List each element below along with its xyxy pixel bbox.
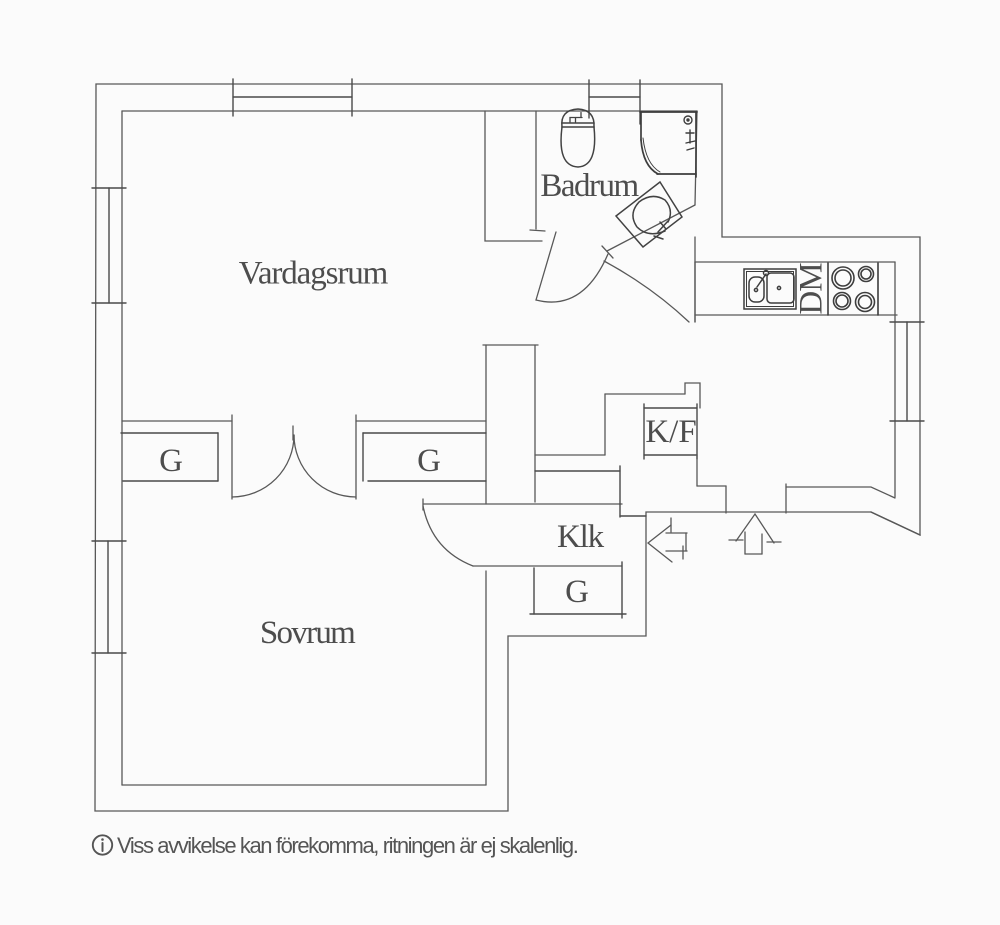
svg-text:Sovrum: Sovrum [260,615,356,651]
svg-text:G: G [159,443,183,479]
svg-text:K/F: K/F [645,414,696,450]
svg-text:Viss avvikelse kan förekomma,: Viss avvikelse kan förekomma, ritningen … [117,833,578,858]
svg-text:DM: DM [794,263,830,315]
svg-text:Badrum: Badrum [540,168,639,204]
svg-text:G: G [565,574,589,610]
svg-text:Vardagsrum: Vardagsrum [239,256,389,292]
svg-text:G: G [417,443,441,479]
svg-text:Klk: Klk [557,519,605,555]
